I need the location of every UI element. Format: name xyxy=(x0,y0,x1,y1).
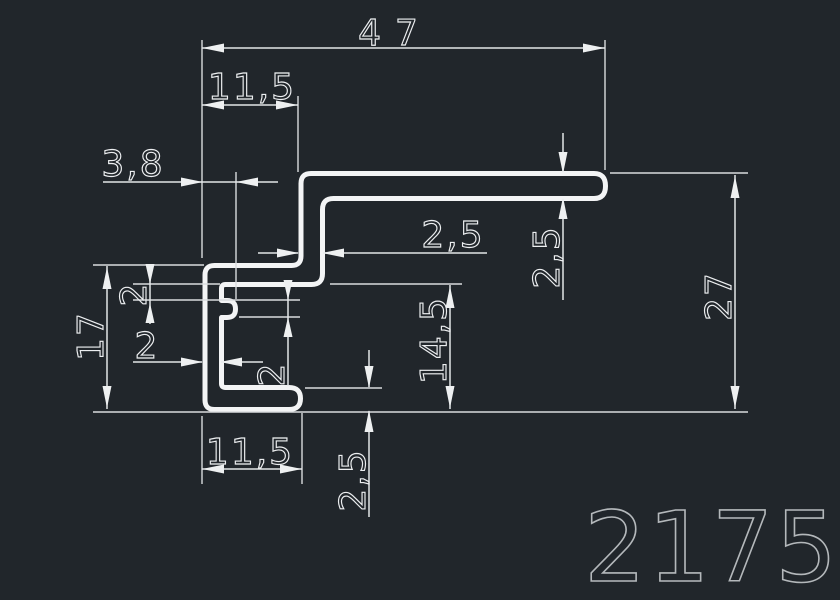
dim-overall-width: 47 xyxy=(358,13,432,54)
arrowhead-up-icon xyxy=(103,267,112,289)
dim-overall-height: 27 xyxy=(699,271,740,321)
dim-inner-height: 14,5 xyxy=(414,296,455,384)
cad-drawing-canvas: 47 11,5 3,8 2,5 2,5 27 17 2 2 2 14,5 2,5… xyxy=(0,0,840,600)
arrowhead-down-icon xyxy=(731,386,740,408)
dim-rib-gap: 2 xyxy=(114,282,155,307)
dim-top-offset: 11,5 xyxy=(208,67,296,108)
dim-rib-offset: 3,8 xyxy=(101,144,164,185)
arrowhead-down-icon xyxy=(103,386,112,408)
arrowhead-left-icon xyxy=(322,249,344,258)
arrowhead-down-icon xyxy=(284,280,293,300)
arrowhead-down-icon xyxy=(365,366,374,388)
dim-bottom-thickness: 2,5 xyxy=(333,448,374,511)
dim-rib-height: 2 xyxy=(252,362,293,387)
arrowhead-down-icon xyxy=(446,386,455,408)
part-number: 2175 xyxy=(584,491,839,600)
extension-lines xyxy=(93,40,748,484)
arrowhead-left-icon xyxy=(236,178,258,187)
arrowhead-down-icon xyxy=(559,152,568,174)
dim-bottom-width: 11,5 xyxy=(206,432,294,473)
arrowhead-right-icon xyxy=(583,44,605,53)
arrowhead-right-icon xyxy=(181,178,203,187)
dimension-texts: 47 11,5 3,8 2,5 2,5 27 17 2 2 2 14,5 2,5… xyxy=(71,13,740,512)
arrowhead-up-icon xyxy=(365,410,374,432)
dim-channel-height: 17 xyxy=(71,311,112,361)
arrowhead-down-icon xyxy=(146,264,155,284)
dimension-lines xyxy=(103,48,735,517)
arrowhead-right-icon xyxy=(277,249,299,258)
arrowheads xyxy=(103,44,740,474)
arrowhead-up-icon xyxy=(731,176,740,198)
arrowhead-right-icon xyxy=(181,358,203,367)
arrowhead-up-icon xyxy=(284,317,293,337)
dim-flange-thickness: 2,5 xyxy=(527,225,568,288)
dim-wall-thickness: 2 xyxy=(135,326,160,367)
dim-web-thickness: 2,5 xyxy=(421,215,484,256)
arrowhead-left-icon xyxy=(202,44,224,53)
